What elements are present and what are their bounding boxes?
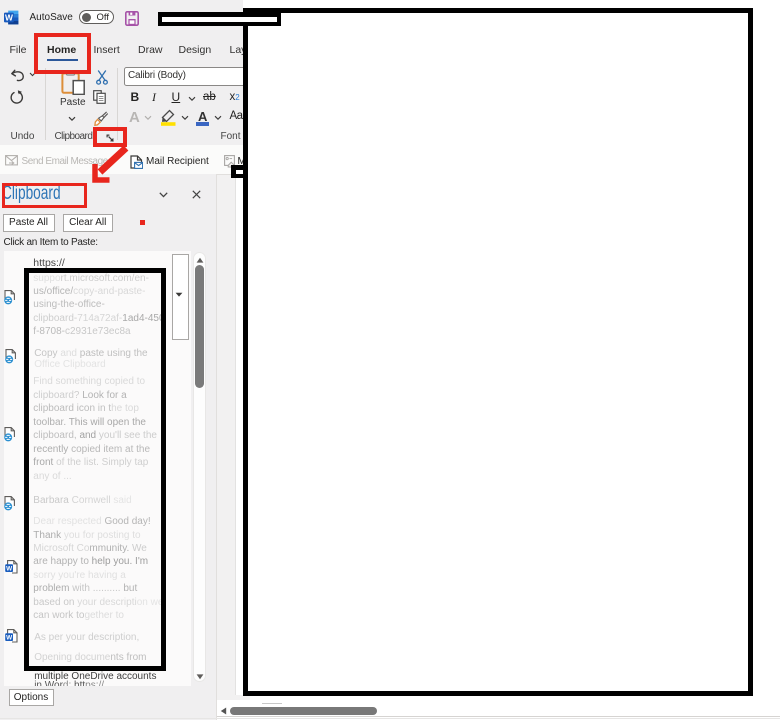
svg-text:W: W [6,565,13,572]
svg-text:W: W [5,12,13,22]
svg-text:W: W [6,634,13,641]
